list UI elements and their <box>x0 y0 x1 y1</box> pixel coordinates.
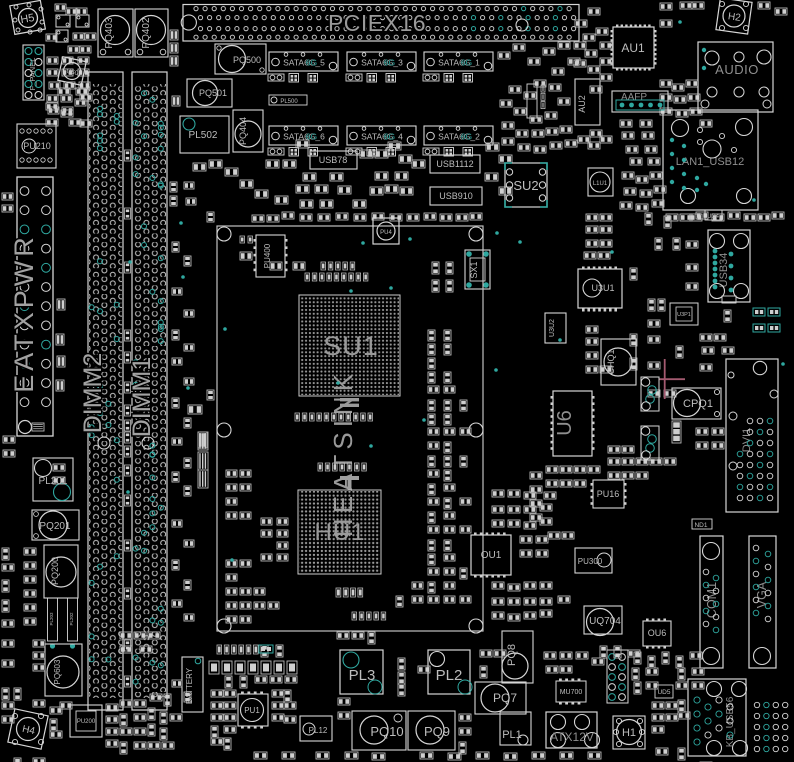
svg-text:PU200: PU200 <box>77 719 96 725</box>
svg-text:UQ704: UQ704 <box>589 616 621 627</box>
svg-text:PQ402: PQ402 <box>141 17 152 49</box>
svg-text:PL3: PL3 <box>349 667 376 684</box>
svg-text:6G: 6G <box>461 132 472 142</box>
svg-text:PU4: PU4 <box>380 230 392 236</box>
svg-text:OU6: OU6 <box>648 628 667 638</box>
svg-text:PL202: PL202 <box>69 612 74 626</box>
svg-text:H1: H1 <box>622 727 636 739</box>
svg-text:PQ7: PQ7 <box>493 691 517 705</box>
svg-text:PQ9: PQ9 <box>424 724 450 739</box>
svg-text:L1U1: L1U1 <box>593 181 608 187</box>
svg-text:PQ403: PQ403 <box>104 17 115 49</box>
svg-text:UD5: UD5 <box>657 689 670 696</box>
svg-text:PQ500: PQ500 <box>233 55 261 65</box>
svg-text:U3U2: U3U2 <box>549 319 556 337</box>
svg-text:6G: 6G <box>306 58 317 68</box>
svg-text:VGA: VGA <box>755 581 769 608</box>
svg-text:UD4: UD4 <box>707 214 720 220</box>
svg-text:CHQ1: CHQ1 <box>606 349 616 374</box>
svg-text:U6: U6 <box>554 410 576 436</box>
svg-text:6G: 6G <box>461 58 472 68</box>
svg-text:SATA6G_3: SATA6G_3 <box>361 58 403 68</box>
svg-text:F_PANEL: F_PANEL <box>28 58 37 91</box>
svg-text:PQ201: PQ201 <box>39 521 71 532</box>
svg-text:SU1: SU1 <box>323 331 379 361</box>
svg-text:AAFP: AAFP <box>621 92 647 103</box>
svg-text:PU1: PU1 <box>244 706 260 715</box>
svg-text:USB910: USB910 <box>439 191 473 201</box>
svg-text:6G: 6G <box>384 132 395 142</box>
svg-text:MU700: MU700 <box>560 689 583 696</box>
svg-text:U3U1: U3U1 <box>591 283 614 293</box>
svg-text:USB1112: USB1112 <box>436 159 473 169</box>
svg-text:PQ200: PQ200 <box>50 557 60 585</box>
svg-text:ATX12V: ATX12V <box>550 730 594 744</box>
svg-text:DIMM2: DIMM2 <box>79 353 107 434</box>
svg-text:AUDIO: AUDIO <box>715 62 759 77</box>
svg-text:SU2: SU2 <box>513 178 538 193</box>
svg-text:DIMM1: DIMM1 <box>128 357 156 438</box>
svg-text:PL500: PL500 <box>280 99 298 105</box>
svg-text:PQ603: PQ603 <box>53 659 62 684</box>
svg-text:AU2: AU2 <box>577 95 587 113</box>
svg-text:H5: H5 <box>20 12 36 26</box>
svg-text:AU1: AU1 <box>621 41 645 55</box>
svg-text:PL2: PL2 <box>436 667 463 684</box>
svg-text:H2: H2 <box>727 11 742 24</box>
svg-text:SATA6G_2: SATA6G_2 <box>438 132 480 142</box>
svg-text:USB34: USB34 <box>718 253 730 288</box>
svg-text:CPQ1: CPQ1 <box>683 398 713 410</box>
svg-text:PL502: PL502 <box>189 130 218 141</box>
svg-text:PU300: PU300 <box>578 557 603 566</box>
svg-text:PQ404: PQ404 <box>238 117 248 145</box>
svg-text:SATA6G_1: SATA6G_1 <box>438 58 480 68</box>
svg-text:USB78: USB78 <box>319 155 348 165</box>
svg-text:PQ10: PQ10 <box>370 724 403 739</box>
svg-text:U3P1: U3P1 <box>677 312 691 318</box>
svg-text:PQ501: PQ501 <box>199 88 227 98</box>
svg-text:OU1: OU1 <box>481 550 502 561</box>
svg-text:EATXPWR: EATXPWR <box>9 233 39 393</box>
svg-text:PU400: PU400 <box>263 243 272 268</box>
svg-text:PQ8: PQ8 <box>506 644 518 666</box>
svg-text:PL203: PL203 <box>49 612 54 626</box>
svg-text:ND1: ND1 <box>694 522 707 529</box>
svg-text:6G: 6G <box>384 58 395 68</box>
svg-text:PCIEX16: PCIEX16 <box>328 10 426 36</box>
svg-text:SATA6G_5: SATA6G_5 <box>283 58 325 68</box>
svg-text:SX1: SX1 <box>469 261 479 278</box>
svg-text:PU210: PU210 <box>23 141 51 151</box>
svg-text:PL12: PL12 <box>309 726 328 735</box>
svg-text:PL1: PL1 <box>502 729 522 741</box>
svg-text:HU1: HU1 <box>314 519 365 546</box>
svg-text:SATA6G_4: SATA6G_4 <box>361 132 403 142</box>
svg-text:PU16: PU16 <box>597 489 620 499</box>
